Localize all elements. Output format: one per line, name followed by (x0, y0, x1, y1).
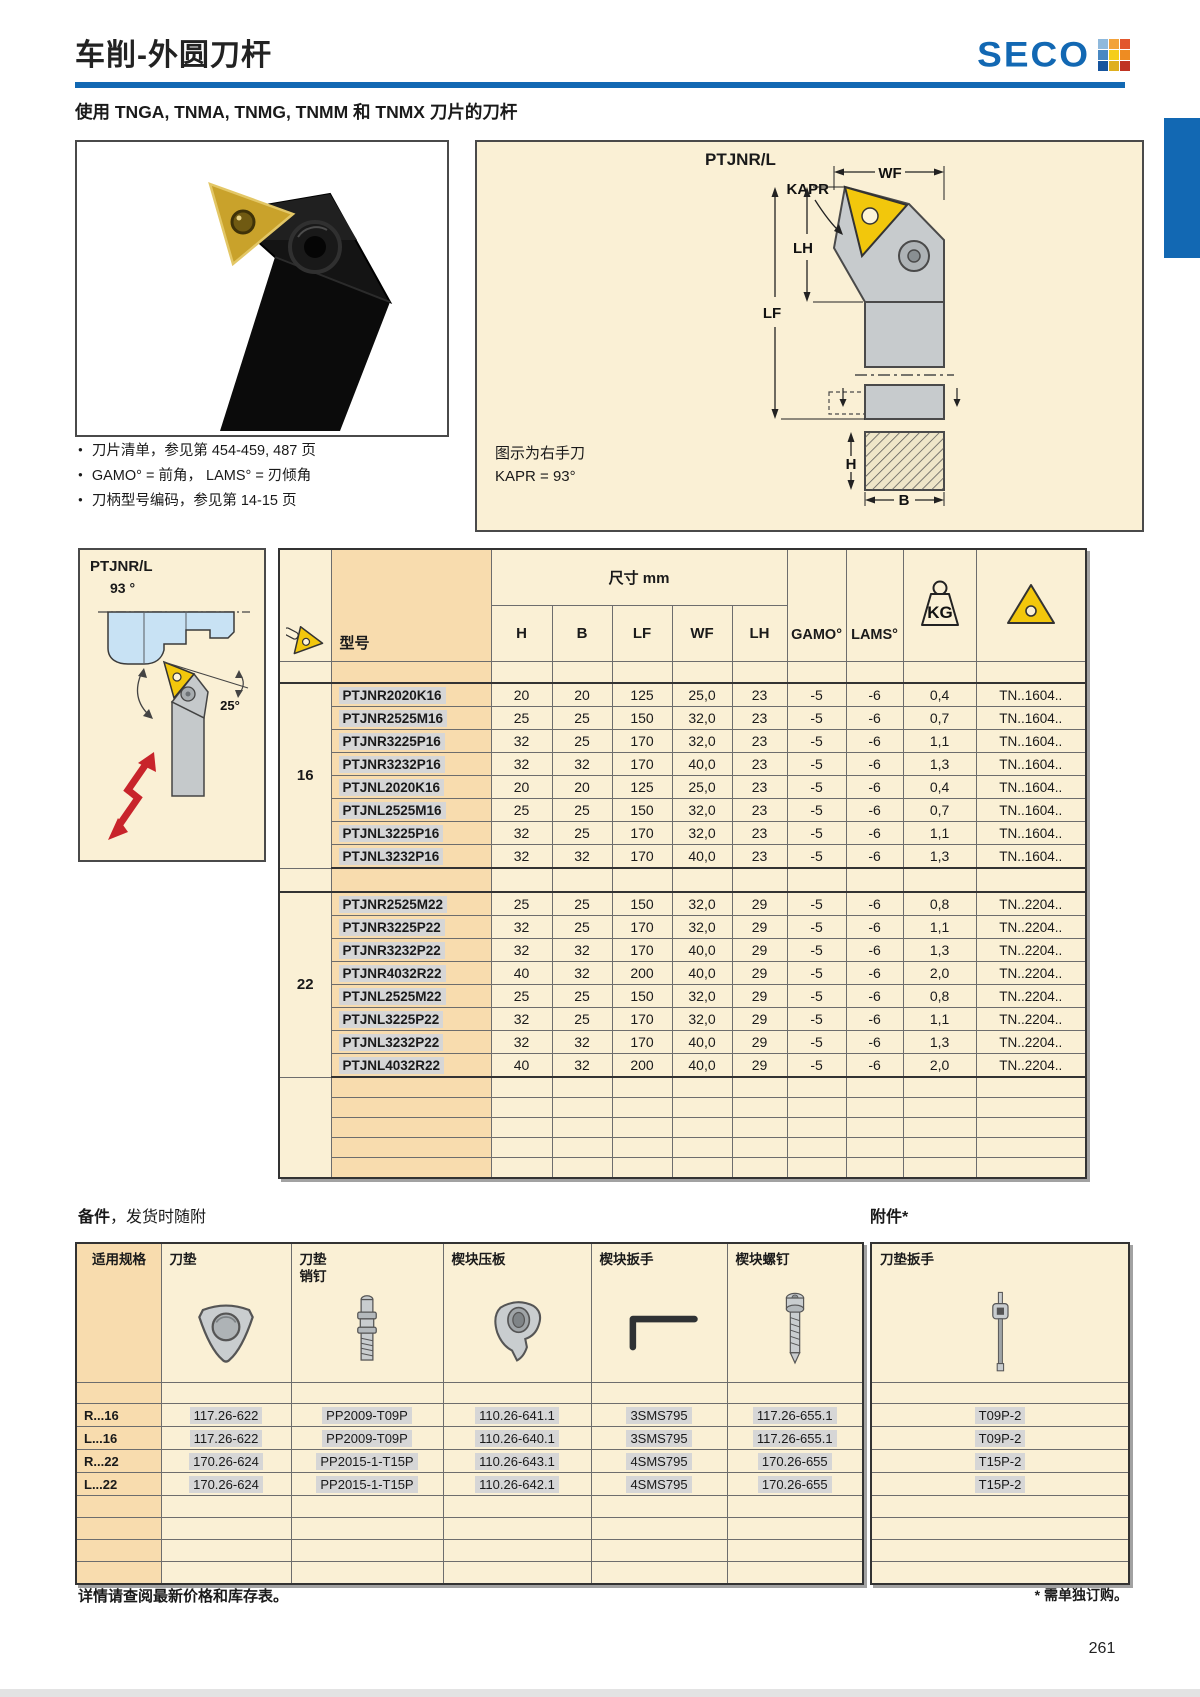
value-cell: 20 (491, 776, 552, 799)
table-cell (291, 1540, 443, 1562)
table-cell (612, 1158, 672, 1179)
value-cell: -6 (846, 822, 903, 845)
table-cell (612, 1098, 672, 1118)
part-number-cell: T09P-2 (871, 1427, 1129, 1450)
col-header-spec: 适用规格 (76, 1243, 161, 1383)
table-cell (291, 1383, 443, 1404)
application-model-label: PTJNR/L (90, 558, 153, 575)
column-header-insert-type (976, 549, 1086, 662)
value-cell: 1,1 (903, 916, 976, 939)
part-number-cell: PP2009-T09P (291, 1427, 443, 1450)
table-cell (672, 868, 732, 892)
part-number-cell: PP2009-T09P (291, 1404, 443, 1427)
value-cell: -5 (787, 683, 846, 707)
value-cell: 0,7 (903, 799, 976, 822)
table-cell (903, 1158, 976, 1179)
empty-row (871, 1383, 1129, 1404)
part-number-cell: T15P-2 (871, 1450, 1129, 1473)
table-cell (903, 1098, 976, 1118)
empty-row (871, 1518, 1129, 1540)
note-item: 刀柄型号编码，参见第 14-15 页 (78, 488, 316, 513)
model-cell: PTJNR2525M22 (331, 892, 491, 916)
empty-row (279, 1158, 1086, 1179)
table-cell (491, 1158, 552, 1179)
table-cell (672, 1158, 732, 1179)
table-cell (732, 1118, 787, 1138)
logo-grid-cell (1120, 39, 1130, 49)
table-cell (443, 1518, 591, 1540)
value-cell: 40 (491, 962, 552, 985)
value-cell: 25 (552, 799, 612, 822)
part-number-cell: 117.26-655.1 (727, 1427, 863, 1450)
table-cell (672, 1077, 732, 1098)
logo-grid-cell (1109, 50, 1119, 60)
part-number-cell: 170.26-624 (161, 1450, 291, 1473)
table-cell (552, 662, 612, 684)
table-cell (591, 1496, 727, 1518)
model-row: PTJNR3225P16322517032,023-5-61,1TN..1604… (279, 730, 1086, 753)
spare-row: L...16117.26-622PP2009-T09P110.26-640.13… (76, 1427, 863, 1450)
table-cell (331, 1118, 491, 1138)
empty-row (279, 1098, 1086, 1118)
value-cell: 32,0 (672, 730, 732, 753)
model-row: PTJNL2525M22252515032,029-5-60,8TN..2204… (279, 985, 1086, 1008)
column-header-h: H (491, 606, 552, 662)
table-cell (732, 1158, 787, 1179)
value-cell: 20 (491, 683, 552, 707)
part-number-cell: 110.26-643.1 (443, 1450, 591, 1473)
table-cell (903, 662, 976, 684)
spares-title-bold: 备件 (78, 1209, 110, 1226)
table-cell (672, 662, 732, 684)
dim-label-h: H (846, 456, 857, 473)
model-row: PTJNR3225P22322517032,029-5-61,1TN..2204… (279, 916, 1086, 939)
insert-code-cell: TN..2204.. (976, 892, 1086, 916)
table-cell (331, 662, 491, 684)
value-cell: 1,1 (903, 1008, 976, 1031)
table-cell (331, 1158, 491, 1179)
empty-row (871, 1496, 1129, 1518)
column-header-lams: LAMS° (846, 549, 903, 662)
value-cell: 2,0 (903, 1054, 976, 1078)
wedge-clamp-icon (444, 1289, 591, 1379)
insert-code-cell: TN..1604.. (976, 776, 1086, 799)
value-cell: -5 (787, 916, 846, 939)
value-cell: 40,0 (672, 962, 732, 985)
value-cell: 170 (612, 939, 672, 962)
value-cell: 32 (552, 962, 612, 985)
table-cell (279, 868, 331, 892)
value-cell: 29 (732, 985, 787, 1008)
logo-grid-cell (1120, 50, 1130, 60)
insert-code-cell: TN..2204.. (976, 1054, 1086, 1078)
value-cell: 23 (732, 799, 787, 822)
table-cell (672, 1118, 732, 1138)
value-cell: 170 (612, 916, 672, 939)
spec-cell: L...22 (76, 1473, 161, 1496)
value-cell: 32 (491, 822, 552, 845)
table-cell (443, 1496, 591, 1518)
table-cell (76, 1540, 161, 1562)
insert-code-cell: TN..1604.. (976, 707, 1086, 730)
table-cell (732, 1077, 787, 1098)
part-number-cell: 117.26-622 (161, 1427, 291, 1450)
col-header-shim: 刀垫 (161, 1243, 291, 1383)
column-header-weight: KG (903, 549, 976, 662)
insert-code-cell: TN..1604.. (976, 799, 1086, 822)
value-cell: 1,3 (903, 1031, 976, 1054)
logo-grid-cell (1098, 39, 1108, 49)
value-cell: 1,3 (903, 845, 976, 869)
value-cell: 32,0 (672, 822, 732, 845)
group-size-label: 22 (279, 892, 331, 1077)
table-cell (871, 1496, 1129, 1518)
model-row: PTJNL2525M16252515032,023-5-60,7TN..1604… (279, 799, 1086, 822)
part-number-cell: 117.26-622 (161, 1404, 291, 1427)
seco-color-grid-icon (1098, 39, 1130, 71)
value-cell: 32 (552, 845, 612, 869)
value-cell: -5 (787, 939, 846, 962)
value-cell: 32,0 (672, 985, 732, 1008)
value-cell: 150 (612, 707, 672, 730)
value-cell: 25 (552, 707, 612, 730)
table-cell (903, 1077, 976, 1098)
wedge-screw-icon (728, 1289, 863, 1379)
value-cell: 170 (612, 822, 672, 845)
value-cell: 32,0 (672, 1008, 732, 1031)
col-header-wedge-wrench: 楔块扳手 (591, 1243, 727, 1383)
table-cell (291, 1562, 443, 1585)
value-cell: -6 (846, 845, 903, 869)
model-cell: PTJNR3225P16 (331, 730, 491, 753)
insert-code-cell: TN..1604.. (976, 822, 1086, 845)
model-row: PTJNL2020K16202012525,023-5-60,4TN..1604… (279, 776, 1086, 799)
model-row: PTJNR3232P22323217040,029-5-61,3TN..2204… (279, 939, 1086, 962)
model-cell: PTJNR2525M16 (331, 707, 491, 730)
model-cell: PTJNL3232P16 (331, 845, 491, 869)
model-row: PTJNL3232P16323217040,023-5-61,3TN..1604… (279, 845, 1086, 869)
value-cell: 170 (612, 753, 672, 776)
insert-code-cell: TN..1604.. (976, 845, 1086, 869)
model-cell: PTJNL2525M16 (331, 799, 491, 822)
table-cell (612, 662, 672, 684)
catalog-page: 车削-外圆刀杆 SECO 使用 TNGA, TNMA, TNMG, TNMM 和… (0, 0, 1200, 1697)
value-cell: -5 (787, 730, 846, 753)
model-cell: PTJNL3225P16 (331, 822, 491, 845)
table-cell (846, 868, 903, 892)
table-cell (279, 1077, 331, 1178)
value-cell: -5 (787, 962, 846, 985)
subtitle: 使用 TNGA, TNMA, TNMG, TNMM 和 TNMX 刀片的刀杆 (75, 99, 517, 124)
insert-triangle-icon (1004, 580, 1058, 628)
value-cell: 1,1 (903, 730, 976, 753)
accessory-row: T15P-2 (871, 1450, 1129, 1473)
table-cell (612, 868, 672, 892)
empty-row (76, 1496, 863, 1518)
table-cell (976, 1118, 1086, 1138)
column-header-wf: WF (672, 606, 732, 662)
value-cell: -5 (787, 1054, 846, 1078)
value-cell: 150 (612, 892, 672, 916)
empty-row (871, 1562, 1129, 1585)
value-cell: -5 (787, 892, 846, 916)
group-size-label: 16 (279, 683, 331, 868)
table-cell (161, 1518, 291, 1540)
accessory-row: T09P-2 (871, 1404, 1129, 1427)
spares-table: 适用规格 刀垫 刀垫 销钉 (75, 1242, 864, 1585)
table-cell (903, 1138, 976, 1158)
dim-label-b: B (899, 492, 910, 509)
table-cell (727, 1540, 863, 1562)
value-cell: 25 (552, 892, 612, 916)
table-cell (903, 1118, 976, 1138)
table-cell (331, 1138, 491, 1158)
footnote-order-separately: * 需单独订购。 (1035, 1585, 1128, 1605)
value-cell: -6 (846, 730, 903, 753)
insert-code-cell: TN..2204.. (976, 1008, 1086, 1031)
insert-code-cell: TN..1604.. (976, 753, 1086, 776)
table-cell (552, 1118, 612, 1138)
table-cell (976, 1158, 1086, 1179)
dim-label-wf: WF (878, 165, 901, 182)
col-header-shim-wrench: 刀垫扳手 (871, 1243, 1129, 1383)
part-number-cell: 4SMS795 (591, 1450, 727, 1473)
table-cell (591, 1518, 727, 1540)
col-header-shim-pin: 刀垫 销钉 (291, 1243, 443, 1383)
model-cell: PTJNR3225P22 (331, 916, 491, 939)
table-cell (552, 1138, 612, 1158)
spec-cell: R...16 (76, 1404, 161, 1427)
table-cell (672, 1138, 732, 1158)
kg-label: KG (927, 603, 953, 622)
model-row: PTJNL3225P16322517032,023-5-61,1TN..1604… (279, 822, 1086, 845)
spec-cell: L...16 (76, 1427, 161, 1450)
value-cell: 40,0 (672, 753, 732, 776)
value-cell: 29 (732, 1031, 787, 1054)
value-cell: 23 (732, 776, 787, 799)
table-cell (871, 1540, 1129, 1562)
application-angle-label: 93 ° (110, 580, 135, 596)
shim-pin-icon (292, 1289, 443, 1379)
note-item: GAMO° = 前角， LAMS° = 刃倾角 (78, 463, 316, 488)
value-cell: -5 (787, 1008, 846, 1031)
table-cell (612, 1118, 672, 1138)
table-cell (161, 1540, 291, 1562)
accessory-row: T09P-2 (871, 1427, 1129, 1450)
value-cell: 200 (612, 1054, 672, 1078)
model-cell: PTJNR2020K16 (331, 683, 491, 707)
model-cell: PTJNL2525M22 (331, 985, 491, 1008)
table-cell (727, 1518, 863, 1540)
logo-grid-cell (1098, 50, 1108, 60)
model-row: PTJNR4032R22403220040,029-5-62,0TN..2204… (279, 962, 1086, 985)
footer-note: 详情请查阅最新价格和库存表。 (78, 1585, 288, 1606)
empty-row (279, 1138, 1086, 1158)
value-cell: 125 (612, 776, 672, 799)
value-cell: 32 (491, 1008, 552, 1031)
value-cell: 32,0 (672, 892, 732, 916)
model-cell: PTJNR4032R22 (331, 962, 491, 985)
insert-code-cell: TN..1604.. (976, 683, 1086, 707)
table-cell (976, 1138, 1086, 1158)
value-cell: -6 (846, 776, 903, 799)
table-cell (846, 1138, 903, 1158)
part-number-cell: 110.26-641.1 (443, 1404, 591, 1427)
table-cell (871, 1562, 1129, 1585)
table-cell (903, 868, 976, 892)
value-cell: 25,0 (672, 776, 732, 799)
insert-shape-column-header (279, 549, 331, 662)
part-number-cell: 170.26-655 (727, 1473, 863, 1496)
table-cell (552, 1158, 612, 1179)
value-cell: 29 (732, 1008, 787, 1031)
table-cell (76, 1383, 161, 1404)
table-cell (672, 1098, 732, 1118)
empty-row (279, 1118, 1086, 1138)
value-cell: 32 (491, 753, 552, 776)
torx-wrench-icon (872, 1289, 1128, 1379)
value-cell: 170 (612, 1008, 672, 1031)
seco-logo: SECO (977, 34, 1130, 76)
table-cell (732, 868, 787, 892)
value-cell: -6 (846, 1031, 903, 1054)
title-divider (75, 82, 1125, 88)
table-cell (846, 1077, 903, 1098)
table-cell (846, 1158, 903, 1179)
value-cell: -6 (846, 799, 903, 822)
model-cell: PTJNR3232P22 (331, 939, 491, 962)
spare-row: R...22170.26-624PP2015-1-T15P110.26-643.… (76, 1450, 863, 1473)
application-drawing: 25° (80, 606, 260, 856)
value-cell: 23 (732, 753, 787, 776)
value-cell: -6 (846, 939, 903, 962)
table-cell (787, 1138, 846, 1158)
value-cell: 32 (552, 1031, 612, 1054)
table-cell (787, 1118, 846, 1138)
value-cell: 32 (552, 939, 612, 962)
table-cell (976, 1077, 1086, 1098)
part-number-cell: T09P-2 (871, 1404, 1129, 1427)
value-cell: 32,0 (672, 799, 732, 822)
insert-code-cell: TN..1604.. (976, 730, 1086, 753)
value-cell: -6 (846, 962, 903, 985)
value-cell: 20 (552, 683, 612, 707)
table-cell (787, 1077, 846, 1098)
part-number-cell: 110.26-642.1 (443, 1473, 591, 1496)
page-bottom-strip (0, 1689, 1200, 1697)
value-cell: -6 (846, 753, 903, 776)
table-cell (552, 1077, 612, 1098)
value-cell: 200 (612, 962, 672, 985)
value-cell: 0,7 (903, 707, 976, 730)
value-cell: 25 (552, 985, 612, 1008)
spare-row: R...16117.26-622PP2009-T09P110.26-641.13… (76, 1404, 863, 1427)
value-cell: 25 (552, 730, 612, 753)
value-cell: -6 (846, 683, 903, 707)
table-cell (291, 1496, 443, 1518)
value-cell: 29 (732, 1054, 787, 1078)
value-cell: 40 (491, 1054, 552, 1078)
value-cell: 25 (552, 1008, 612, 1031)
table-cell (612, 1138, 672, 1158)
part-number-cell: 3SMS795 (591, 1427, 727, 1450)
logo-grid-cell (1120, 61, 1130, 71)
part-number-cell: 4SMS795 (591, 1473, 727, 1496)
shim-icon (162, 1289, 291, 1379)
value-cell: -5 (787, 985, 846, 1008)
value-cell: -5 (787, 776, 846, 799)
table-cell (291, 1518, 443, 1540)
dimension-diagram-panel: PTJNR/L (475, 140, 1144, 532)
table-cell (732, 1098, 787, 1118)
value-cell: 40,0 (672, 939, 732, 962)
value-cell: 40,0 (672, 845, 732, 869)
table-cell (443, 1562, 591, 1585)
model-row: 16PTJNR2020K16202012525,023-5-60,4TN..16… (279, 683, 1086, 707)
column-header-model: 型号 (331, 549, 491, 662)
table-cell (871, 1518, 1129, 1540)
part-number-cell: 110.26-640.1 (443, 1427, 591, 1450)
table-cell (331, 1098, 491, 1118)
table-cell (591, 1540, 727, 1562)
table-cell (76, 1562, 161, 1585)
column-header-gamo: GAMO° (787, 549, 846, 662)
value-cell: -6 (846, 1008, 903, 1031)
application-panel: PTJNR/L 93 ° 25° (78, 548, 266, 862)
model-row: PTJNL4032R22403220040,029-5-62,0TN..2204… (279, 1054, 1086, 1078)
value-cell: -6 (846, 707, 903, 730)
spares-title-rest: ，发货时随附 (110, 1209, 206, 1226)
value-cell: -5 (787, 753, 846, 776)
part-number-cell: PP2015-1-T15P (291, 1450, 443, 1473)
table-cell (279, 662, 331, 684)
diagram-note: KAPR = 93° (495, 465, 585, 488)
insert-code-cell: TN..2204.. (976, 985, 1086, 1008)
value-cell: 23 (732, 707, 787, 730)
insert-triangle-small-icon (286, 621, 324, 655)
value-cell: 32 (491, 1031, 552, 1054)
value-cell: -6 (846, 916, 903, 939)
page-title: 车削-外圆刀杆 (75, 30, 272, 74)
table-cell (976, 1098, 1086, 1118)
empty-row (76, 1562, 863, 1585)
value-cell: -5 (787, 799, 846, 822)
part-number-cell: T15P-2 (871, 1473, 1129, 1496)
page-edge-tab (1164, 118, 1200, 258)
value-cell: 40,0 (672, 1054, 732, 1078)
page-number: 261 (1072, 1640, 1132, 1658)
table-cell (161, 1383, 291, 1404)
value-cell: 32 (552, 753, 612, 776)
value-cell: 29 (732, 962, 787, 985)
col-header-wedge-screw: 楔块螺钉 (727, 1243, 863, 1383)
value-cell: 150 (612, 799, 672, 822)
dim-label-lf: LF (763, 305, 781, 322)
value-cell: 40,0 (672, 1031, 732, 1054)
accessories-table: 刀垫扳手 T09P-2T09P-2T15P-2T15 (870, 1242, 1130, 1585)
spec-cell: R...22 (76, 1450, 161, 1473)
table-cell (76, 1496, 161, 1518)
table-cell (491, 868, 552, 892)
value-cell: 20 (552, 776, 612, 799)
value-cell: -5 (787, 822, 846, 845)
value-cell: -5 (787, 1031, 846, 1054)
table-cell (331, 1077, 491, 1098)
value-cell: 29 (732, 892, 787, 916)
value-cell: 23 (732, 730, 787, 753)
value-cell: 23 (732, 845, 787, 869)
model-row: PTJNL3225P22322517032,029-5-61,1TN..2204… (279, 1008, 1086, 1031)
